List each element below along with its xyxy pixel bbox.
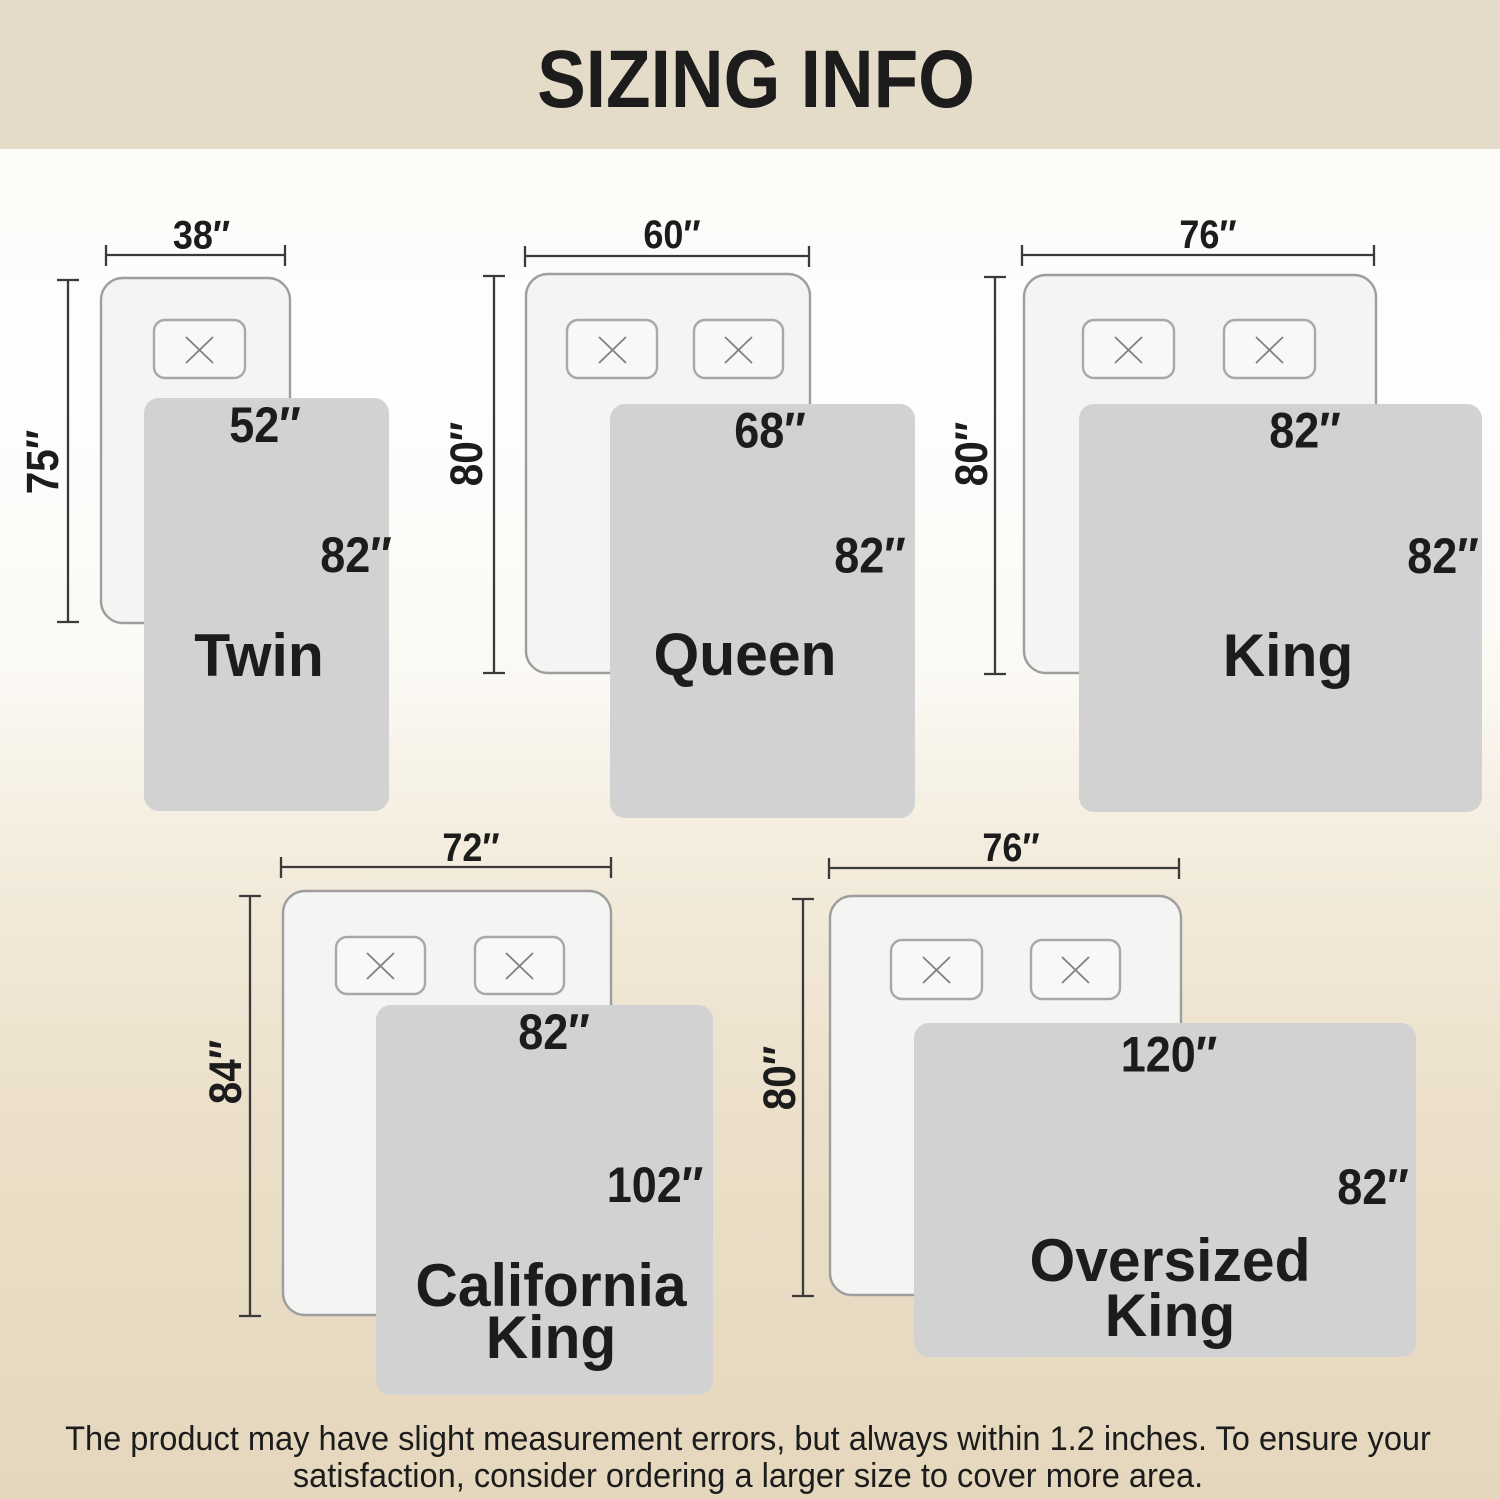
svg-text:60″: 60″ — [643, 213, 700, 257]
svg-text:Twin: Twin — [194, 621, 324, 689]
svg-text:The product may have slight me: The product may have slight measurement … — [65, 1420, 1431, 1458]
svg-text:King: King — [486, 1303, 617, 1371]
svg-text:82″: 82″ — [1407, 529, 1479, 585]
svg-text:68″: 68″ — [734, 403, 806, 459]
svg-text:80″: 80″ — [755, 1046, 805, 1110]
svg-text:80″: 80″ — [442, 422, 492, 486]
svg-text:82″: 82″ — [320, 528, 392, 584]
svg-text:82″: 82″ — [518, 1005, 590, 1061]
svg-text:52″: 52″ — [229, 398, 301, 454]
svg-text:82″: 82″ — [834, 528, 906, 584]
svg-text:Queen: Queen — [654, 620, 837, 688]
svg-text:75″: 75″ — [18, 430, 68, 494]
svg-text:82″: 82″ — [1337, 1160, 1409, 1216]
svg-text:King: King — [1105, 1281, 1236, 1349]
svg-text:102″: 102″ — [607, 1158, 704, 1214]
svg-text:SIZING INFO: SIZING INFO — [537, 34, 975, 125]
svg-text:80″: 80″ — [947, 422, 997, 486]
svg-text:satisfaction, consider orderin: satisfaction, consider ordering a larger… — [293, 1457, 1203, 1495]
svg-text:76″: 76″ — [1179, 213, 1236, 257]
svg-text:84″: 84″ — [201, 1040, 251, 1104]
svg-text:72″: 72″ — [442, 826, 499, 870]
svg-text:82″: 82″ — [1269, 403, 1341, 459]
svg-text:76″: 76″ — [982, 826, 1039, 870]
svg-text:King: King — [1223, 621, 1354, 689]
svg-text:38″: 38″ — [173, 214, 230, 258]
svg-text:120″: 120″ — [1121, 1027, 1218, 1083]
